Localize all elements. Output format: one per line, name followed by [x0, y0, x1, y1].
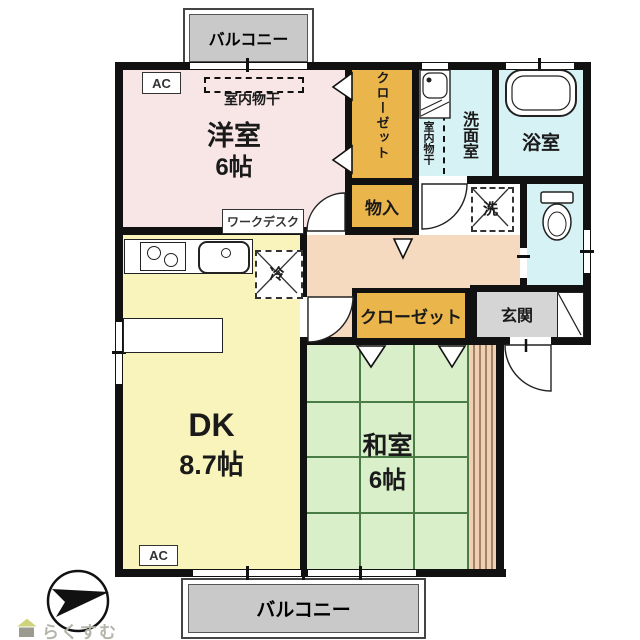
fridge-label: 冷: [255, 252, 299, 294]
toilet-floor: [527, 184, 583, 285]
bathroom-floor: [499, 70, 583, 176]
western-room-size: 6帖: [123, 150, 345, 178]
wall: [583, 62, 591, 345]
washroom-drying-rail: [443, 104, 447, 174]
tatami-line: [307, 401, 468, 403]
sink-icon: [198, 241, 250, 274]
hallway-floor2: [470, 235, 520, 285]
storage-label: 物入: [352, 185, 412, 227]
logo-text: らくすむ: [42, 618, 118, 640]
strip-line: [473, 345, 475, 569]
wall: [300, 342, 307, 577]
sink-faucet: [221, 248, 231, 258]
wall: [520, 184, 527, 248]
window-tick: [302, 566, 305, 580]
strip-line: [479, 345, 481, 569]
window-tick: [246, 566, 249, 580]
window-tick: [359, 566, 362, 580]
closet-upper-label: クローゼット: [358, 88, 406, 144]
wall: [496, 337, 504, 577]
logo-house-roof: [16, 618, 38, 627]
window: [308, 570, 416, 576]
wall: [467, 176, 591, 184]
wall: [345, 227, 419, 235]
washer-label: 洗: [471, 189, 510, 227]
strip-line: [491, 345, 493, 569]
wall: [115, 62, 123, 577]
window-tick: [580, 250, 594, 253]
dk-name: DK: [123, 405, 300, 445]
wall: [470, 285, 591, 292]
japanese-room-name: 和室: [307, 428, 468, 460]
wall: [412, 62, 419, 235]
door-arc-entrance: [505, 345, 551, 391]
wall: [470, 285, 477, 345]
bathroom-label: 浴室: [499, 128, 583, 154]
closet-hall-label: クローゼット: [352, 288, 470, 343]
indoor-drying-label: 室内物干: [200, 91, 304, 107]
balcony-bottom-outer: バルコニー: [181, 578, 426, 639]
stove-icon: [140, 242, 186, 271]
dk-counter-table: [123, 318, 223, 353]
washroom-drying-label: 室内物干: [420, 108, 436, 178]
stove-burner: [164, 253, 178, 267]
window-tick: [246, 58, 249, 72]
stove-burner: [147, 246, 161, 260]
floorplan: バルコニー バルコニー AC AC ワークデスク 洋室 6帖 室内物干 クローゼ…: [0, 0, 640, 640]
balcony-bottom-label: バルコニー: [188, 584, 419, 633]
entrance-label: 玄関: [477, 300, 557, 328]
tatami-line: [307, 512, 468, 514]
dk-size: 8.7帖: [123, 445, 300, 479]
window-tick: [538, 58, 541, 72]
logo-house-icon: [19, 625, 34, 637]
work-desk-label: ワークデスク: [222, 209, 304, 234]
shoe-cabinet: [557, 292, 584, 338]
wall: [345, 178, 419, 185]
compass-arrow: [52, 589, 109, 617]
washroom-label: 洗面室: [455, 95, 481, 175]
wall: [551, 337, 591, 345]
japanese-room-size: 6帖: [307, 462, 468, 492]
balcony-top-label: バルコニー: [189, 14, 308, 62]
strip-line: [485, 345, 487, 569]
wall: [345, 62, 352, 235]
western-room-name: 洋室: [123, 117, 345, 149]
window: [422, 63, 448, 69]
toilet-door-gap: [521, 248, 526, 278]
ac-label-western: AC: [142, 72, 181, 94]
wall: [492, 62, 499, 176]
ac-label-dk: AC: [139, 545, 178, 566]
door-tick: [517, 255, 530, 258]
